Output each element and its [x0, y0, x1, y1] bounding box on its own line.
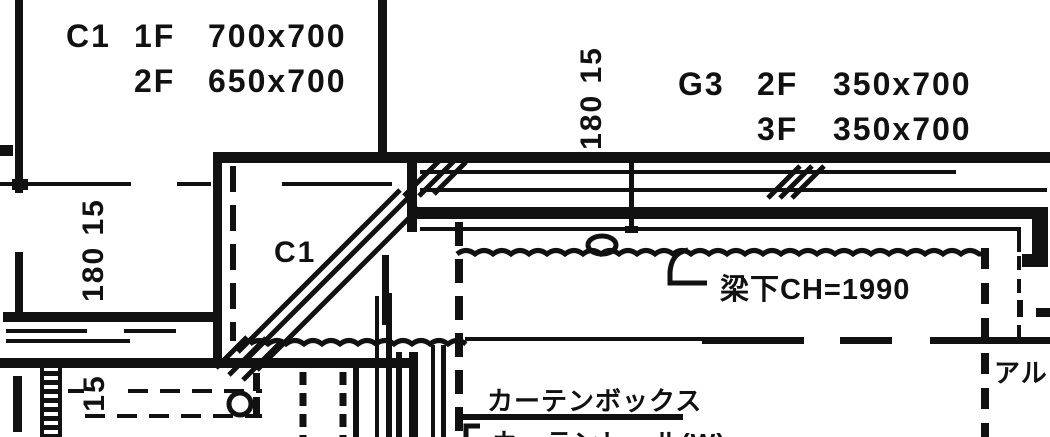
aluminum-label: アルミ [994, 358, 1050, 388]
wall-thin-line [1017, 227, 1021, 252]
centerline-dash [702, 337, 804, 344]
label-bracket [466, 426, 480, 437]
post-circle-symbol [229, 393, 251, 415]
track-line [375, 296, 379, 437]
ladder-rung [40, 371, 62, 376]
wall-thin-line [420, 170, 956, 174]
extension-line [629, 152, 634, 230]
curtain-box-label: カーテンボックス [487, 386, 702, 416]
column-edge-line [213, 152, 222, 368]
ladder-rung [40, 380, 62, 385]
wall-line [15, 0, 23, 193]
wall-line [15, 252, 23, 316]
floor-plan-drawing: C1 1F 700x700 2F 650x700 G3 2F 350x700 3… [0, 0, 1050, 437]
wall-line [3, 312, 218, 322]
wall-line [378, 0, 387, 161]
wall-line [0, 145, 13, 156]
ladder-rung [40, 425, 62, 430]
ladder-rung [40, 389, 62, 394]
freehand-break-line [457, 251, 988, 255]
louver-ladder-symbol [40, 368, 62, 437]
schedule-size-label: 350x700 [833, 66, 972, 102]
wall-line [415, 207, 1032, 219]
mullion-bar [13, 376, 22, 432]
schedule-floor-label: 1F [134, 18, 175, 54]
dimension-label-mid: 180 15 [575, 46, 608, 150]
extension-line-foot [625, 226, 638, 233]
column-schedule-tag: C1 [66, 18, 111, 54]
centerline-dash [840, 337, 892, 344]
dimension-tick [12, 179, 28, 190]
track-line [409, 352, 418, 437]
beam-clearance-label: 梁下CH=1990 [720, 273, 910, 306]
track-line [396, 352, 402, 437]
girder-schedule-tag: G3 [678, 66, 725, 102]
ladder-rung [40, 398, 62, 403]
column-label: C1 [274, 236, 316, 269]
track-line [353, 368, 359, 437]
dimension-label-left: 180 15 [77, 198, 110, 302]
wall-thin-line [420, 188, 1047, 192]
wall-thin-line [282, 182, 392, 186]
wall-line [0, 358, 415, 368]
window-glass-line [6, 339, 130, 343]
curtain-rail-label: カーテンレール(W) [492, 428, 726, 437]
ladder-rung [40, 407, 62, 412]
opening-thin-line [465, 337, 703, 341]
dashed-bar [253, 397, 260, 415]
dashed-bar [253, 373, 260, 391]
niche-line [1036, 308, 1050, 317]
centerline-dash [930, 337, 1050, 344]
schedule-floor-label: 2F [757, 66, 798, 102]
schedule-floor-label: 3F [757, 111, 798, 147]
wall-line [1022, 254, 1048, 267]
dimension-label-sill: 15 [78, 374, 111, 411]
schedule-floor-label: 2F [134, 63, 175, 99]
window-glass-line [124, 329, 176, 333]
wall-thin-line [420, 227, 1019, 231]
freehand-break-line [250, 341, 466, 345]
niche-line [1017, 300, 1023, 317]
ladder-rung [40, 416, 62, 421]
beam-centerline-dashes [702, 337, 1050, 344]
wall-thin-line [177, 182, 211, 186]
schedule-size-label: 700x700 [208, 18, 347, 54]
plan-canvas: C1 1F 700x700 2F 650x700 G3 2F 350x700 3… [0, 0, 1050, 437]
track-line [441, 345, 446, 437]
track-line [386, 293, 392, 437]
schedule-size-label: 350x700 [833, 111, 972, 147]
schedule-size-label: 650x700 [208, 63, 347, 99]
window-glass-line [6, 329, 87, 333]
track-line [431, 345, 435, 437]
